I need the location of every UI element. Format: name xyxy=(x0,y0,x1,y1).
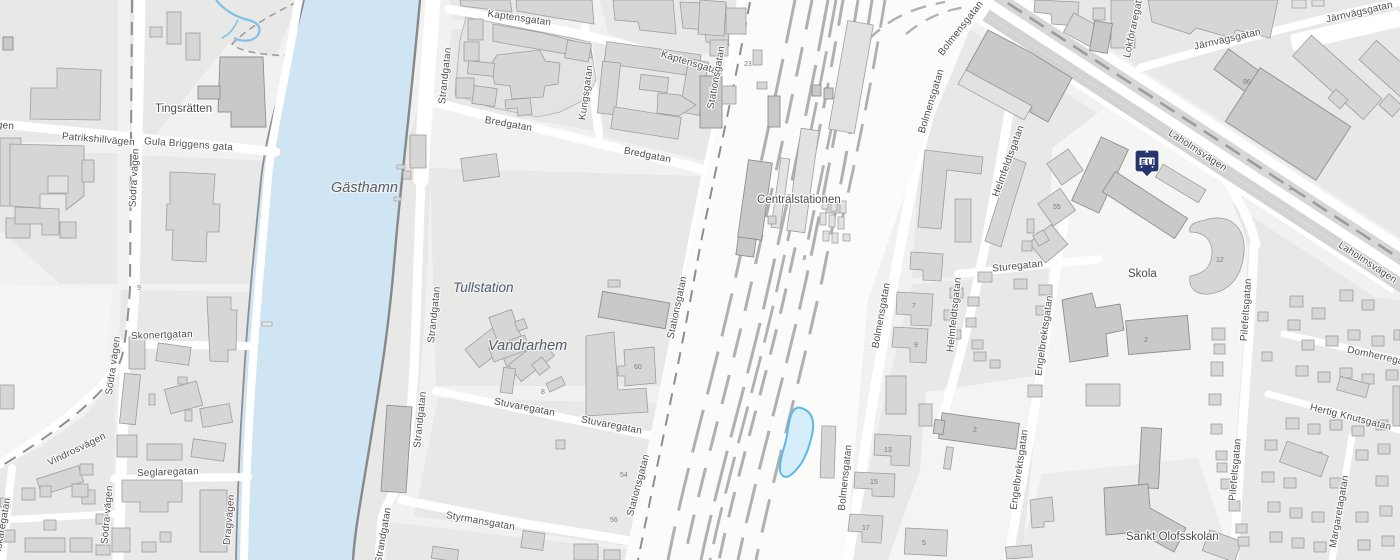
svg-text:2: 2 xyxy=(1144,337,1148,344)
svg-text:Tullstation: Tullstation xyxy=(453,280,514,295)
svg-text:96: 96 xyxy=(1243,79,1251,86)
svg-text:Seglaregatan: Seglaregatan xyxy=(137,466,199,479)
svg-text:23: 23 xyxy=(744,61,752,68)
svg-text:Skola: Skola xyxy=(1128,268,1157,280)
svg-text:56: 56 xyxy=(610,517,618,524)
svg-text:9: 9 xyxy=(137,285,141,292)
svg-text:Gästhamn: Gästhamn xyxy=(331,180,398,196)
svg-text:5: 5 xyxy=(922,540,926,547)
svg-text:Tingsrätten: Tingsrätten xyxy=(155,103,212,115)
svg-text:1: 1 xyxy=(1288,185,1292,192)
svg-text:7: 7 xyxy=(912,303,916,310)
svg-text:vägen: vägen xyxy=(0,119,15,132)
svg-text:12: 12 xyxy=(1216,257,1224,264)
svg-text:Centralstationen: Centralstationen xyxy=(757,194,841,206)
svg-text:Sankt Olofsskolan: Sankt Olofsskolan xyxy=(1126,531,1219,543)
svg-text:Vandrarhem: Vandrarhem xyxy=(488,338,567,354)
svg-text:60: 60 xyxy=(634,364,642,371)
svg-text:8: 8 xyxy=(541,389,545,396)
svg-text:13: 13 xyxy=(884,447,892,454)
svg-text:9: 9 xyxy=(914,342,918,349)
svg-text:54: 54 xyxy=(620,472,628,479)
svg-text:55: 55 xyxy=(1053,204,1061,211)
svg-text:15: 15 xyxy=(870,479,878,486)
svg-text:2: 2 xyxy=(973,427,977,434)
svg-text:17: 17 xyxy=(862,525,870,532)
svg-text:Skonertgatan: Skonertgatan xyxy=(131,329,193,342)
